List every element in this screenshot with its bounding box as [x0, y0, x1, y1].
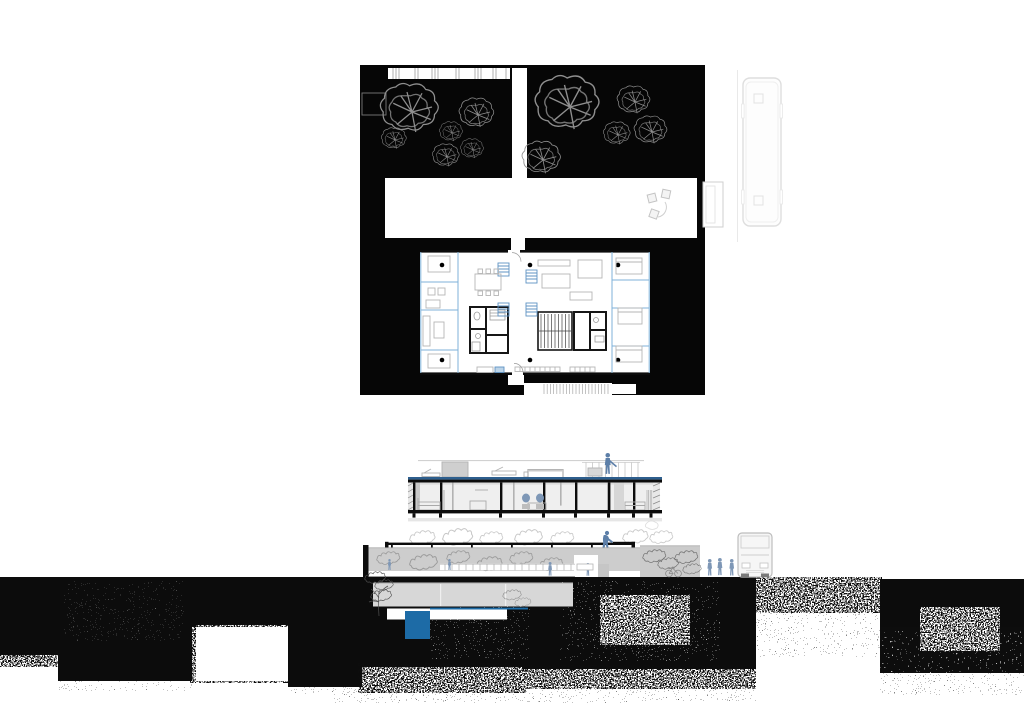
basement-mass [373, 583, 573, 607]
basement-edge [373, 583, 573, 585]
pool-waterline [430, 608, 528, 610]
roof-slab-black [408, 480, 662, 483]
floor-slab [408, 510, 662, 513]
street-elevation [355, 528, 775, 646]
mid-slab [363, 577, 575, 580]
basement-joint-1 [440, 584, 441, 606]
top-road-strip [388, 68, 510, 79]
floor-plan-background [420, 250, 650, 375]
presentation-sheet [0, 0, 1024, 705]
bench [577, 564, 593, 570]
exterior-stair [524, 383, 636, 395]
bus-front [738, 533, 772, 577]
gray-pillar [598, 564, 609, 577]
right-garden-wall [640, 545, 701, 577]
south-path [508, 375, 524, 385]
pool [405, 611, 430, 639]
building-section [400, 450, 670, 532]
van-outline [742, 78, 783, 226]
roof-deck-figure [602, 531, 613, 550]
vertical-path [512, 68, 527, 180]
site-plan [360, 65, 725, 397]
roof-slab-blue [408, 477, 662, 480]
right-stoop-outline [703, 182, 723, 227]
left-edge-wall [363, 545, 369, 620]
basement-joint-2 [505, 584, 506, 606]
floor-plan [420, 250, 650, 375]
entry-path [511, 238, 525, 252]
ground-floor-glazing [440, 564, 575, 570]
driveway-band [385, 178, 697, 238]
foundation-stubs [413, 513, 653, 517]
upper-band-edge [368, 547, 660, 548]
parked-van-plan [728, 70, 788, 245]
street-people [707, 558, 734, 576]
roof-person [605, 453, 617, 474]
ground-strip [408, 518, 662, 521]
